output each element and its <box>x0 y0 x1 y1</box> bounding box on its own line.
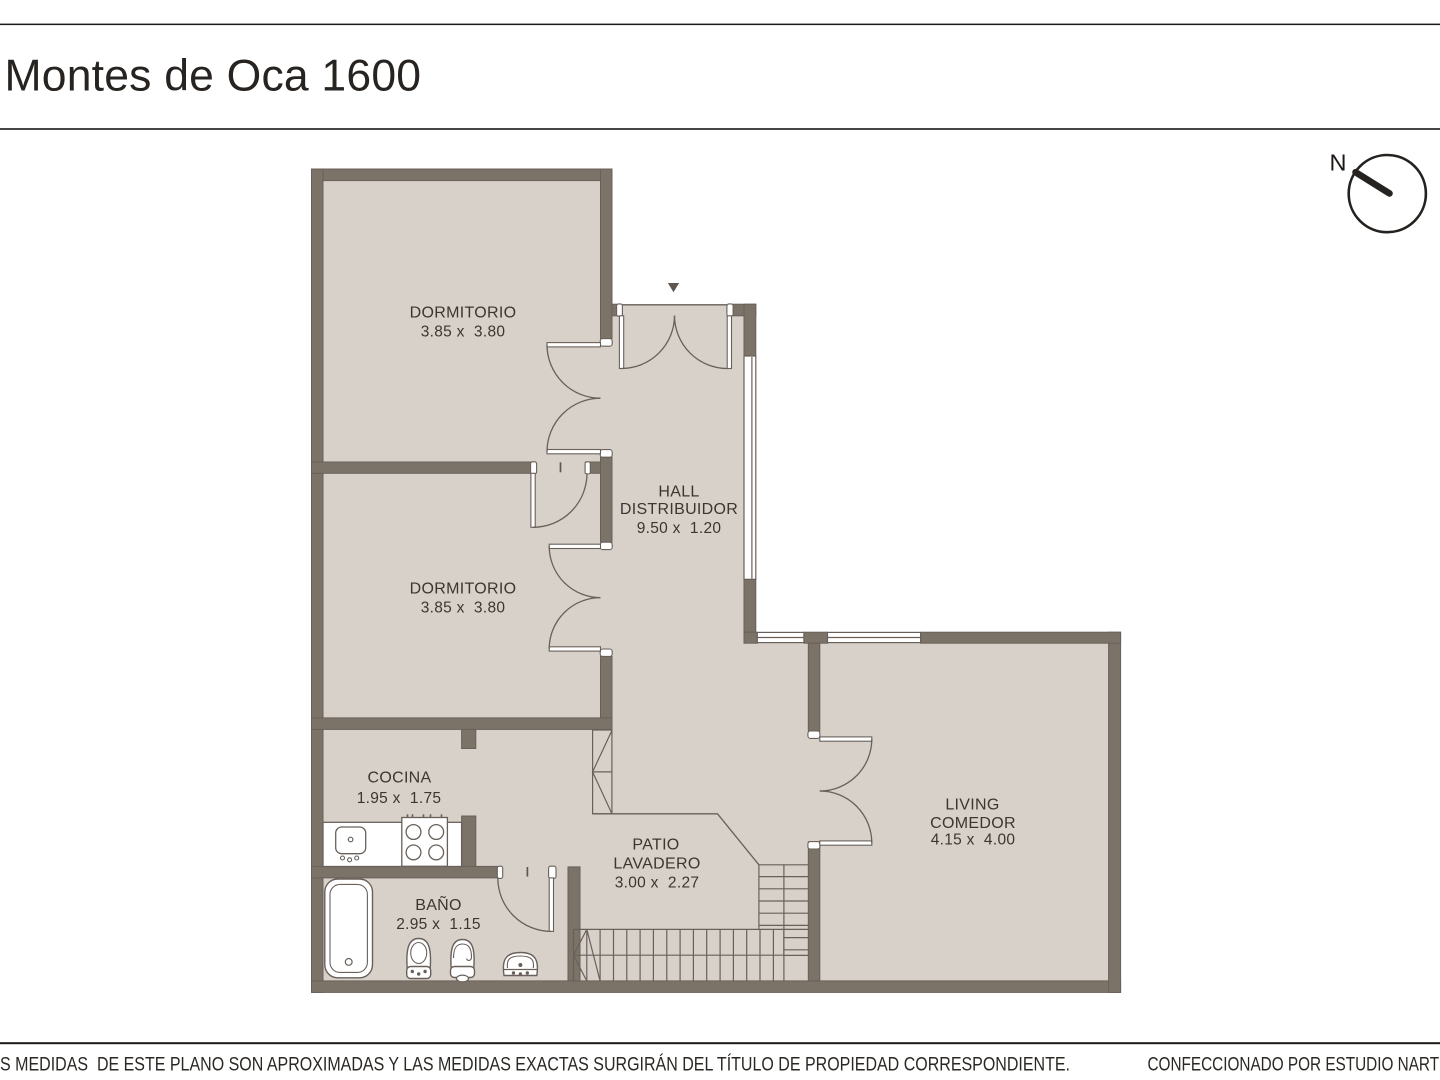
svg-text:CONFECCIONADO POR ESTUDIO NART: CONFECCIONADO POR ESTUDIO NARTEX <box>1148 1055 1440 1076</box>
svg-text:N: N <box>1330 150 1347 176</box>
svg-text:4.15 x 4.00: 4.15 x 4.00 <box>931 832 1016 849</box>
svg-text:PATIO: PATIO <box>632 837 679 854</box>
svg-text:Montes de Oca 1600: Montes de Oca 1600 <box>5 52 422 101</box>
svg-text:S MEDIDAS DE ESTE PLANO SON A: S MEDIDAS DE ESTE PLANO SON APROXIMADAS … <box>0 1055 1070 1076</box>
svg-text:COMEDOR: COMEDOR <box>930 815 1016 832</box>
svg-text:3.85 x 3.80: 3.85 x 3.80 <box>421 324 506 341</box>
svg-text:DORMITORIO: DORMITORIO <box>410 305 517 322</box>
svg-text:DORMITORIO: DORMITORIO <box>410 581 517 598</box>
svg-text:1.95 x 1.75: 1.95 x 1.75 <box>357 790 442 807</box>
svg-text:LIVING: LIVING <box>945 797 999 814</box>
svg-text:COCINA: COCINA <box>367 770 431 787</box>
svg-text:3.00 x 2.27: 3.00 x 2.27 <box>615 875 700 892</box>
svg-text:BAÑO: BAÑO <box>415 894 462 914</box>
svg-text:2.95 x 1.15: 2.95 x 1.15 <box>396 916 481 933</box>
svg-text:3.85 x 3.80: 3.85 x 3.80 <box>421 600 506 617</box>
svg-text:9.50 x 1.20: 9.50 x 1.20 <box>637 520 722 537</box>
svg-text:HALL: HALL <box>658 484 699 501</box>
svg-text:LAVADERO: LAVADERO <box>613 856 700 873</box>
svg-text:DISTRIBUIDOR: DISTRIBUIDOR <box>620 501 738 518</box>
